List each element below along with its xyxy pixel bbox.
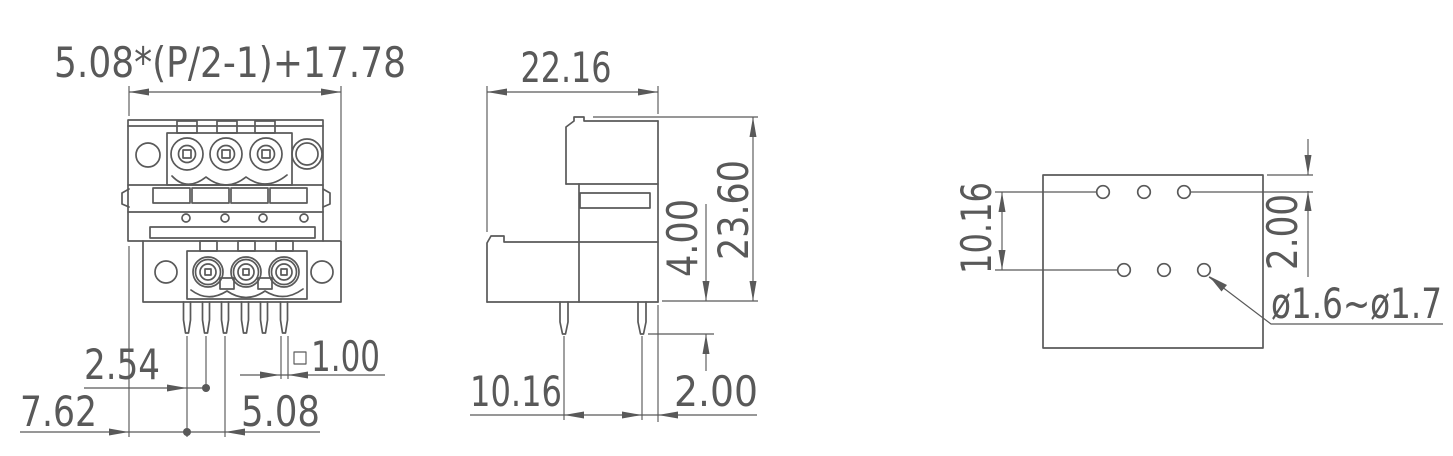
screw-terminal [250, 138, 282, 170]
dim-hole-row-spacing: 10.16 [952, 182, 1006, 274]
arrowhead [703, 281, 710, 301]
pcb-layout-view: 10.16 2.00 ø1.6~ø1.7 [952, 139, 1443, 348]
drill-hole [1097, 186, 1110, 199]
solder-pin [261, 302, 268, 333]
arrowhead [129, 89, 149, 96]
arrowhead [260, 372, 280, 379]
pcb-holes-bottom-row [1118, 264, 1211, 277]
dim-text-hole-diameter: ø1.6~ø1.7 [1271, 279, 1442, 328]
arrowhead [487, 89, 507, 96]
drill-hole [1138, 186, 1151, 199]
arrowhead [167, 385, 187, 392]
mounting-hole [155, 261, 177, 283]
dim-text-edge-to-pin: 7.62 [20, 387, 97, 436]
drawing-canvas: 5.08*(P/2-1)+17.78 2.54 7.62 5.08 [0, 0, 1453, 456]
dim-text-pin-square: 1.00 [311, 332, 380, 381]
dim-text-pin-length: 4.00 [658, 199, 707, 277]
screw-terminal [193, 257, 223, 287]
screw-terminal [210, 138, 242, 170]
dim-text-edge-to-hole: 2.00 [1258, 194, 1307, 270]
solder-pin [222, 302, 229, 333]
screw-terminal [171, 138, 203, 170]
test-hole [221, 214, 229, 222]
screw-terminal [269, 257, 299, 287]
solder-pin [203, 302, 210, 333]
solder-pin [638, 302, 646, 334]
arrowhead [703, 334, 710, 354]
pcb-holes-top-row [1097, 186, 1191, 199]
side-lower-profile [487, 236, 658, 302]
arrowhead [321, 89, 341, 96]
solder-pin [242, 302, 249, 333]
side-body-outline [487, 117, 658, 302]
test-hole [300, 214, 308, 222]
latch-tab [177, 121, 197, 133]
arrowhead [288, 372, 308, 379]
mounting-hole [136, 143, 160, 167]
plug-scallop-edge [172, 175, 287, 185]
side-solder-pins [560, 302, 646, 334]
drill-hole [1198, 264, 1211, 277]
drill-hole [1178, 186, 1191, 199]
mounting-hole [311, 261, 333, 283]
test-hole [259, 214, 267, 222]
dim-text-row-spacing: 10.16 [470, 367, 562, 416]
wire-entry-slot [192, 188, 229, 203]
arrowhead [1305, 155, 1312, 175]
side-latch-wedge [323, 189, 330, 207]
side-dimensions: 22.16 23.60 4.00 [470, 43, 758, 422]
arrowhead [109, 429, 129, 436]
wire-entry-slot [153, 188, 190, 203]
dim-depth: 22.16 [487, 43, 658, 232]
arrowhead [750, 281, 757, 301]
front-view: 5.08*(P/2-1)+17.78 2.54 7.62 5.08 [20, 38, 406, 437]
front-mid-band [122, 188, 330, 238]
pcb-board-outline [1043, 175, 1263, 348]
solder-pin [281, 302, 288, 333]
dim-text-pin-pitch: 5.08 [241, 387, 320, 436]
solder-pin [184, 302, 191, 333]
solder-pin [560, 302, 568, 334]
dimension-dot [183, 428, 191, 436]
arrowhead [750, 117, 757, 137]
pcb-dimensions: 10.16 2.00 ø1.6~ø1.7 [952, 139, 1443, 328]
arrowhead [622, 412, 642, 419]
mounting-hole-inner-ring [296, 143, 318, 165]
dim-edge-to-hole: 2.00 [1258, 139, 1312, 277]
dim-text-depth: 22.16 [521, 43, 612, 92]
side-view: 22.16 23.60 4.00 [470, 43, 758, 422]
dim-text-row-offset: 2.54 [84, 340, 160, 389]
technical-drawing: 5.08*(P/2-1)+17.78 2.54 7.62 5.08 [0, 0, 1453, 456]
arrowhead [638, 89, 658, 96]
wire-entry-slot [231, 188, 268, 203]
dim-hole-diameter: ø1.6~ø1.7 [1209, 276, 1443, 328]
dim-text-overall-width: 5.08*(P/2-1)+17.78 [54, 38, 406, 87]
dim-pin-row-spacing: 10.16 2.00 [470, 305, 758, 422]
dim-text-hole-row-spacing: 10.16 [952, 182, 1001, 274]
dimension-dot [202, 384, 210, 392]
latch-tab [276, 241, 293, 251]
square-section-symbol [294, 352, 306, 364]
rail-rib [150, 227, 315, 238]
dim-text-total-height: 23.60 [709, 160, 758, 260]
screw-terminal [231, 257, 261, 287]
latch-tab [200, 241, 217, 251]
clamp-slot [220, 278, 234, 289]
front-lower-connector [155, 241, 333, 299]
wire-entry-slot [270, 188, 307, 203]
latch-tab [255, 121, 275, 133]
side-plug-profile [566, 117, 658, 184]
arrowhead [564, 412, 584, 419]
dim-pin-square: 1.00 [240, 332, 385, 381]
latch-tab [217, 121, 237, 133]
front-solder-pins [184, 302, 288, 333]
dim-text-pin-edge-offset: 2.00 [674, 367, 758, 416]
plug-scallop-edge [191, 289, 303, 298]
latch-rib [580, 193, 650, 208]
clamp-slot [258, 278, 272, 289]
test-hole [182, 214, 190, 222]
dim-row-offset: 2.54 [84, 340, 210, 392]
latch-tab [238, 241, 255, 251]
drill-hole [1158, 264, 1171, 277]
drill-hole [1118, 264, 1131, 277]
dim-edge-to-pin: 7.62 5.08 [20, 387, 320, 436]
front-upper-connector [136, 121, 322, 185]
